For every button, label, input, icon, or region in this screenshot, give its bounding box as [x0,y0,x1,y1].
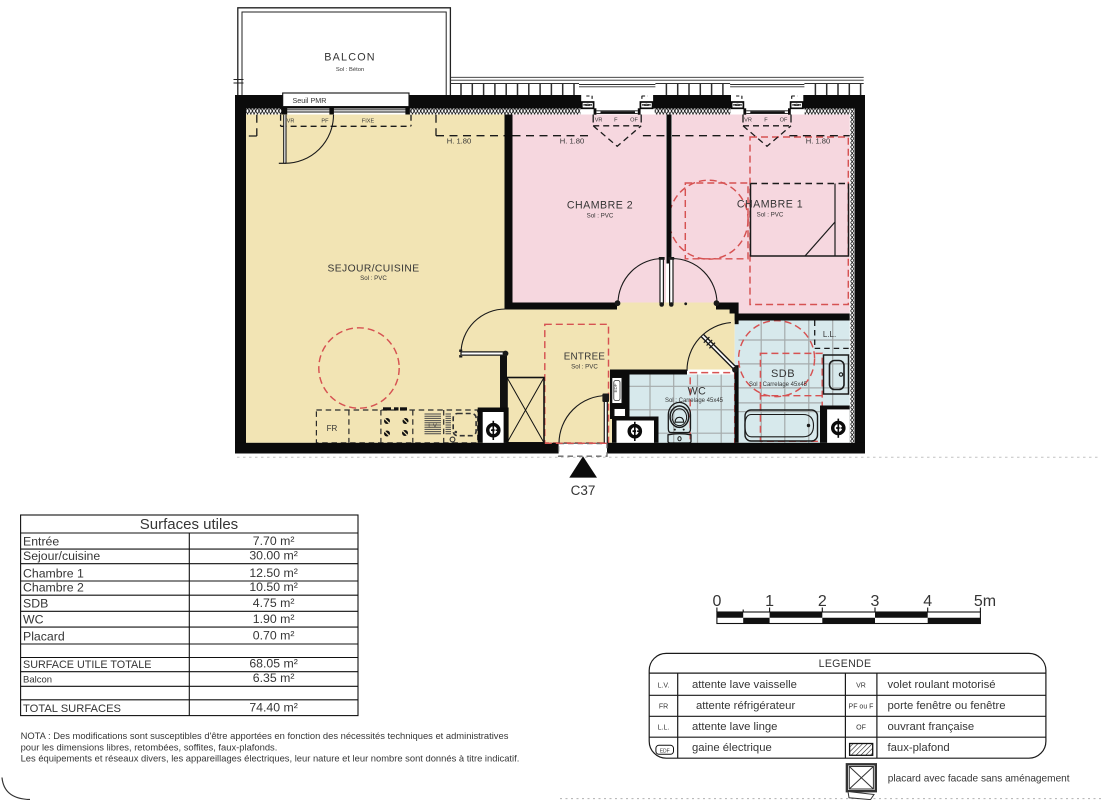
svg-text:CHAMBRE 1: CHAMBRE 1 [737,199,803,211]
svg-text:gaine électrique: gaine électrique [692,742,772,754]
svg-text:attente lave linge: attente lave linge [692,721,777,733]
svg-text:Sol : PVC: Sol : PVC [587,213,614,220]
svg-text:VR: VR [856,682,866,689]
svg-text:SDB: SDB [771,368,795,380]
svg-text:NOTA : Des modifications sont: NOTA : Des modifications sont susceptibl… [21,730,509,741]
svg-text:7.70 m²: 7.70 m² [253,534,295,548]
svg-text:Sol : PVC: Sol : PVC [571,364,598,371]
svg-text:TOTAL SURFACES: TOTAL SURFACES [23,703,121,715]
svg-text:0.70 m²: 0.70 m² [253,629,295,643]
svg-text:LEGENDE: LEGENDE [819,658,872,670]
svg-text:Chambre 2: Chambre 2 [23,581,84,595]
svg-text:68.05 m²: 68.05 m² [249,657,298,671]
svg-text:Sol : Béton: Sol : Béton [336,67,364,73]
svg-text:F: F [764,118,768,124]
svg-text:Entrée: Entrée [23,535,59,549]
svg-text:OF: OF [780,118,788,124]
svg-text:VR: VR [744,118,752,124]
svg-text:SURFACE UTILE TOTALE: SURFACE UTILE TOTALE [23,659,151,671]
svg-text:CHAMBRE 2: CHAMBRE 2 [567,200,633,212]
svg-text:EDF: EDF [613,383,618,392]
svg-text:SDB: SDB [23,597,48,611]
svg-text:1.90 m²: 1.90 m² [253,612,295,626]
svg-text:VR: VR [595,118,603,124]
svg-text:Seuil PMR: Seuil PMR [293,96,327,105]
svg-text:L.V.: L.V. [658,682,670,689]
svg-text:0: 0 [712,593,721,610]
svg-text:Les équipements et réseaux div: Les équipements et réseaux divers, les a… [21,752,520,763]
svg-text:H. 1.80: H. 1.80 [806,137,830,146]
svg-text:OF: OF [856,724,866,731]
svg-text:SEJOUR/CUISINE: SEJOUR/CUISINE [328,264,420,275]
svg-text:Placard: Placard [23,629,65,643]
svg-text:1: 1 [765,593,774,610]
svg-text:placard avec facade sans aména: placard avec facade sans aménagement [888,774,1070,785]
svg-text:FR: FR [327,424,338,433]
svg-text:Sejour/cuisine: Sejour/cuisine [23,549,100,563]
svg-text:12.50 m²: 12.50 m² [249,566,298,580]
svg-text:4: 4 [923,593,932,610]
svg-text:WC: WC [23,612,44,626]
svg-text:ouvrant française: ouvrant française [888,721,975,733]
svg-text:Sol : Carrelage 45x45: Sol : Carrelage 45x45 [749,382,808,388]
svg-text:L.V.: L.V. [428,424,438,430]
svg-text:porte fenêtre ou fenêtre: porte fenêtre ou fenêtre [888,700,1006,712]
svg-text:3: 3 [871,593,880,610]
svg-text:L.L.: L.L. [658,724,670,731]
svg-text:EDF: EDF [660,748,670,754]
svg-text:pour les dimensions libres, re: pour les dimensions libres, retombées, s… [21,741,278,752]
svg-text:74.40 m²: 74.40 m² [249,701,298,715]
svg-text:Surfaces utiles: Surfaces utiles [140,516,238,533]
svg-text:Sol : Carrelage 45x45: Sol : Carrelage 45x45 [665,398,724,404]
svg-text:volet roulant motorisé: volet roulant motorisé [888,679,996,691]
svg-text:VR: VR [287,119,295,125]
svg-text:30.00 m²: 30.00 m² [249,549,298,563]
svg-text:OF: OF [630,118,638,124]
svg-text:Chambre 1: Chambre 1 [23,566,84,580]
svg-text:Sol : PVC: Sol : PVC [360,275,387,282]
svg-text:BALCON: BALCON [324,52,376,64]
svg-text:10.50 m²: 10.50 m² [249,580,298,594]
svg-text:FIXE: FIXE [362,119,375,125]
svg-text:C37: C37 [571,483,596,498]
svg-text:Sol : PVC: Sol : PVC [757,212,784,219]
svg-text:4.75 m²: 4.75 m² [253,596,295,610]
svg-text:6.35 m²: 6.35 m² [253,671,295,685]
svg-text:5m: 5m [974,593,996,610]
svg-text:2: 2 [818,593,827,610]
svg-text:attente réfrigérateur: attente réfrigérateur [696,700,795,712]
svg-text:F: F [614,118,618,124]
svg-text:WC: WC [688,386,707,398]
svg-text:FR: FR [659,703,668,710]
svg-text:Balcon: Balcon [23,675,52,686]
svg-text:faux-plafond: faux-plafond [888,742,950,754]
svg-text:ENTREE: ENTREE [564,351,606,362]
svg-text:PF: PF [321,119,329,125]
svg-text:H. 1.80: H. 1.80 [560,137,584,146]
svg-text:attente lave vaisselle: attente lave vaisselle [692,679,797,691]
svg-text:H. 1.80: H. 1.80 [447,137,471,146]
svg-text:L.L.: L.L. [823,330,836,339]
svg-text:PF ou F: PF ou F [849,703,874,710]
